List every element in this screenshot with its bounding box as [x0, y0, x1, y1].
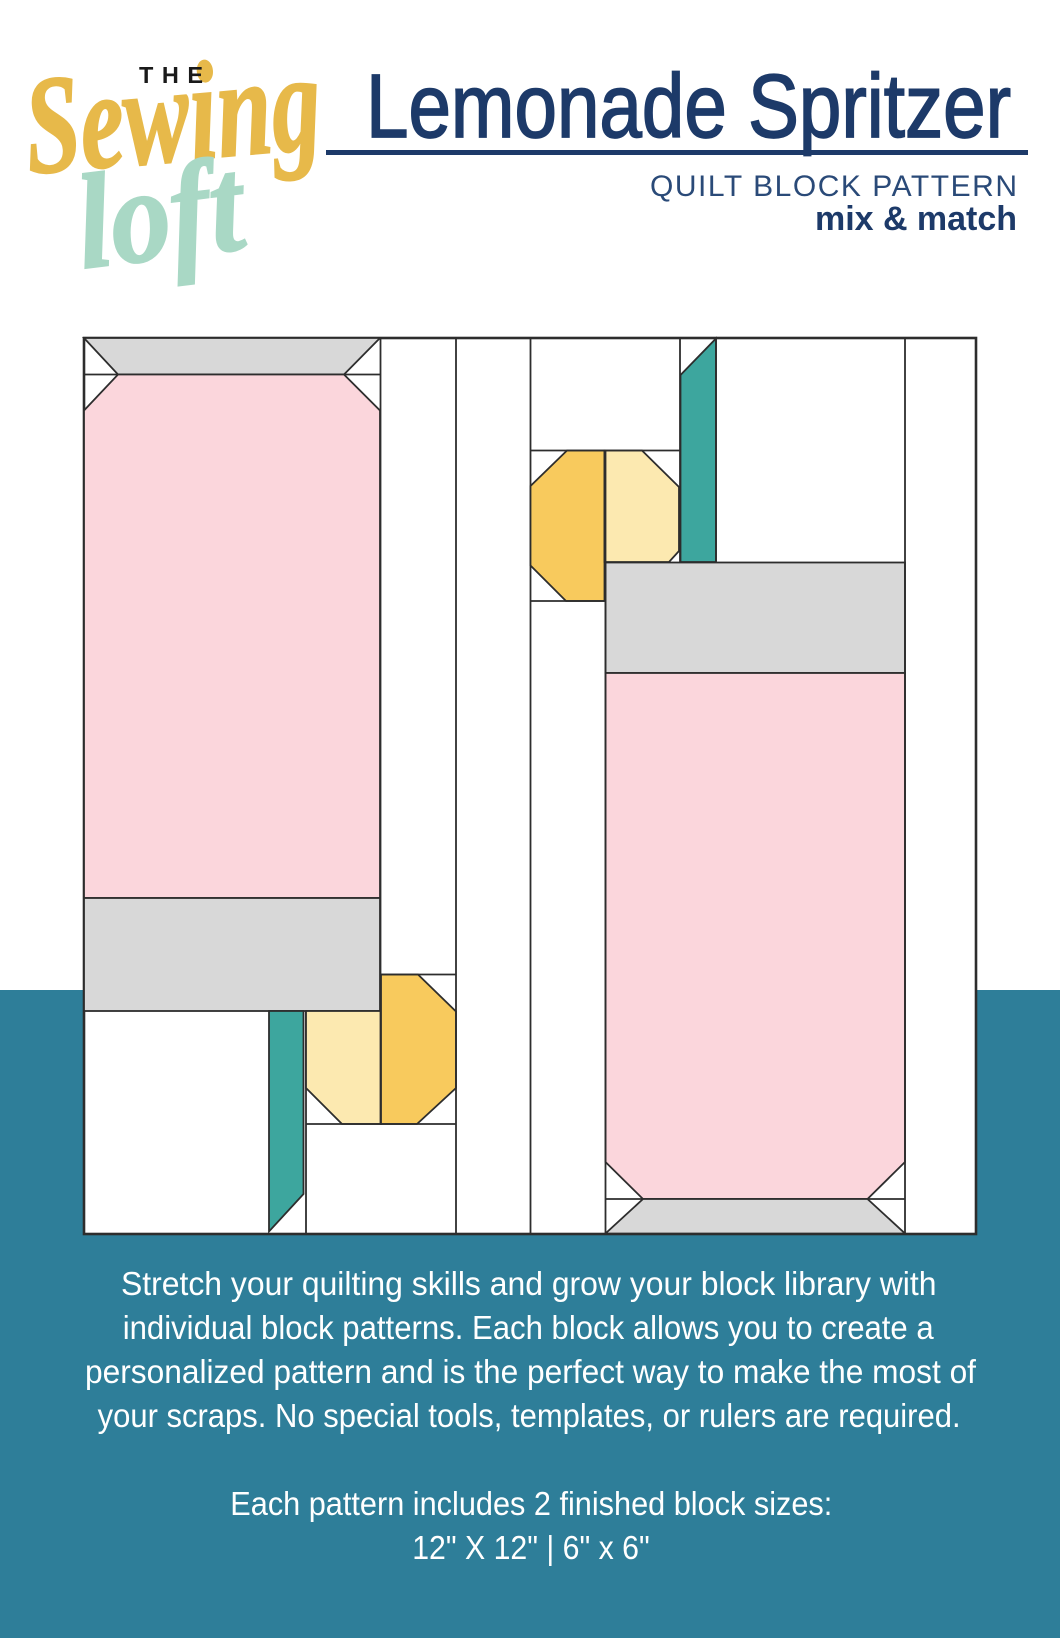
- svg-text:12" X 12" | 6" x 6": 12" X 12" | 6" x 6": [412, 1529, 650, 1566]
- svg-text:mix & match: mix & match: [815, 200, 1017, 238]
- svg-text:QUILT BLOCK PATTERN: QUILT BLOCK PATTERN: [650, 170, 1017, 203]
- svg-text:personalized pattern and is th: personalized pattern and is the perfect …: [85, 1353, 977, 1390]
- svg-text:your scraps. No special tools,: your scraps. No special tools, templates…: [98, 1397, 961, 1434]
- svg-text:Each pattern includes 2 finish: Each pattern includes 2 finished block s…: [230, 1485, 832, 1522]
- svg-text:loft: loft: [68, 130, 254, 298]
- svg-text:Stretch your quilting skills a: Stretch your quilting skills and grow yo…: [121, 1265, 937, 1302]
- svg-text:Lemonade Spritzer: Lemonade Spritzer: [366, 57, 1011, 157]
- svg-text:individual block patterns. Eac: individual block patterns. Each block al…: [123, 1309, 935, 1346]
- svg-text:THE: THE: [139, 62, 203, 88]
